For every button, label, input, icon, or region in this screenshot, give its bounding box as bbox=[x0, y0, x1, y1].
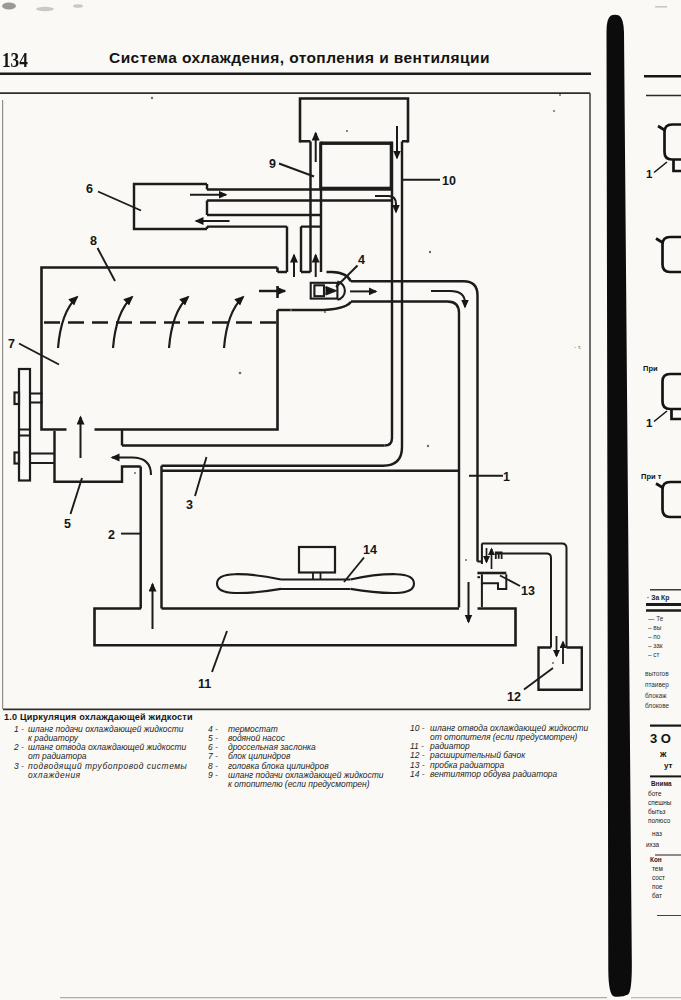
svg-text:птаивер: птаивер bbox=[645, 681, 669, 689]
svg-text:ут: ут bbox=[664, 761, 673, 770]
svg-text:1: 1 bbox=[646, 168, 653, 180]
svg-text:2: 2 bbox=[108, 528, 115, 542]
svg-text:1: 1 bbox=[503, 470, 510, 484]
svg-text:При: При bbox=[643, 364, 658, 373]
svg-text:боте: боте bbox=[648, 790, 662, 797]
svg-text:7: 7 bbox=[8, 337, 15, 351]
svg-text:– вы: – вы bbox=[648, 624, 662, 631]
svg-text:– зак: – зак bbox=[648, 642, 663, 649]
svg-text:наз: наз bbox=[652, 830, 662, 837]
svg-text:— Те: — Те bbox=[648, 615, 664, 622]
svg-text:· За Кр: · За Кр bbox=[647, 594, 669, 602]
svg-text:бытьз: бытьз bbox=[648, 808, 666, 815]
svg-text:Кон: Кон bbox=[650, 856, 662, 863]
svg-text:8: 8 bbox=[90, 234, 97, 248]
svg-text:блокаж: блокаж bbox=[645, 692, 667, 699]
svg-text:спешны: спешны bbox=[648, 799, 672, 806]
svg-text:ж: ж bbox=[659, 749, 667, 759]
svg-text:13: 13 bbox=[521, 584, 535, 598]
svg-text:- т.: - т. bbox=[574, 344, 582, 350]
svg-text:10: 10 bbox=[442, 174, 456, 188]
svg-text:ихза: ихза bbox=[646, 841, 660, 848]
svg-text:сост: сост bbox=[652, 874, 665, 881]
svg-text:11: 11 bbox=[198, 677, 211, 691]
svg-text:1: 1 bbox=[646, 417, 653, 429]
svg-text:12: 12 bbox=[507, 690, 521, 704]
svg-text:тем: тем bbox=[652, 865, 663, 872]
svg-text:9: 9 bbox=[269, 157, 276, 171]
svg-text:Внима: Внима bbox=[651, 780, 672, 787]
svg-text:– по: – по bbox=[648, 633, 661, 640]
svg-text:– ст: – ст bbox=[648, 651, 660, 658]
svg-text:6: 6 bbox=[86, 182, 93, 196]
svg-text:5: 5 bbox=[64, 517, 71, 531]
svg-text:полюсо: полюсо bbox=[648, 817, 671, 824]
svg-text:блокове: блокове bbox=[645, 702, 669, 709]
svg-text:3 О: 3 О bbox=[650, 731, 671, 746]
svg-text:При т: При т bbox=[641, 472, 662, 481]
svg-text:пое: пое bbox=[652, 883, 663, 890]
svg-text:бат: бат bbox=[652, 892, 662, 899]
svg-text:4: 4 bbox=[358, 253, 365, 267]
svg-text:вытогов: вытогов bbox=[645, 670, 669, 677]
svg-text:3: 3 bbox=[186, 498, 193, 512]
svg-text:14: 14 bbox=[363, 543, 377, 557]
